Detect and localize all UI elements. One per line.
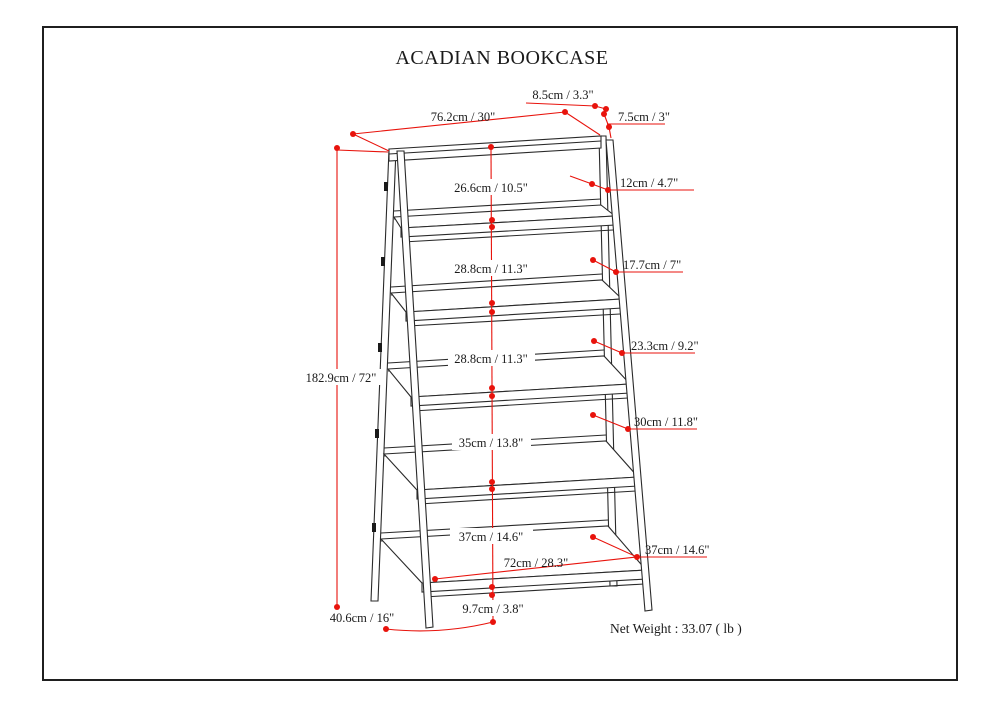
- dim-shelf-depth-3: 23.3cm / 9.2": [631, 339, 699, 353]
- spec-sheet-page: ACADIAN BOOKCASE 182.9cm / 72" 76.2cm / …: [0, 0, 1000, 707]
- dim-shelf-gap-3: 28.8cm / 11.3": [454, 352, 527, 366]
- dim-shelf-gap-2: 28.8cm / 11.3": [454, 262, 527, 276]
- dim-overall-height: 182.9cm / 72": [306, 371, 377, 385]
- dim-base-depth: 40.6cm / 16": [330, 611, 394, 625]
- dim-bottom-shelf-width: 72cm / 28.3": [504, 556, 568, 570]
- dim-side-rail: 7.5cm / 3": [618, 110, 670, 124]
- dim-top-edge: 8.5cm / 3.3": [532, 88, 593, 102]
- dim-shelf-depth-5: 37cm / 14.6": [645, 543, 709, 557]
- page-title: ACADIAN BOOKCASE: [395, 47, 608, 69]
- dim-shelf-gap-4: 35cm / 13.8": [459, 436, 523, 450]
- dim-shelf-gap-1: 26.6cm / 10.5": [454, 181, 528, 195]
- net-weight-label: Net Weight : 33.07 ( lb ): [610, 621, 742, 636]
- dim-bottom-clearance: 9.7cm / 3.8": [462, 602, 523, 616]
- dim-shelf-gap-5: 37cm / 14.6": [459, 530, 523, 544]
- bookcase-dimension-diagram: ACADIAN BOOKCASE 182.9cm / 72" 76.2cm / …: [0, 0, 1000, 707]
- dim-shelf-depth-1: 12cm / 4.7": [620, 176, 678, 190]
- dim-top-width: 76.2cm / 30": [431, 110, 495, 124]
- dim-shelf-depth-2: 17.7cm / 7": [623, 258, 681, 272]
- dim-shelf-depth-4: 30cm / 11.8": [634, 415, 698, 429]
